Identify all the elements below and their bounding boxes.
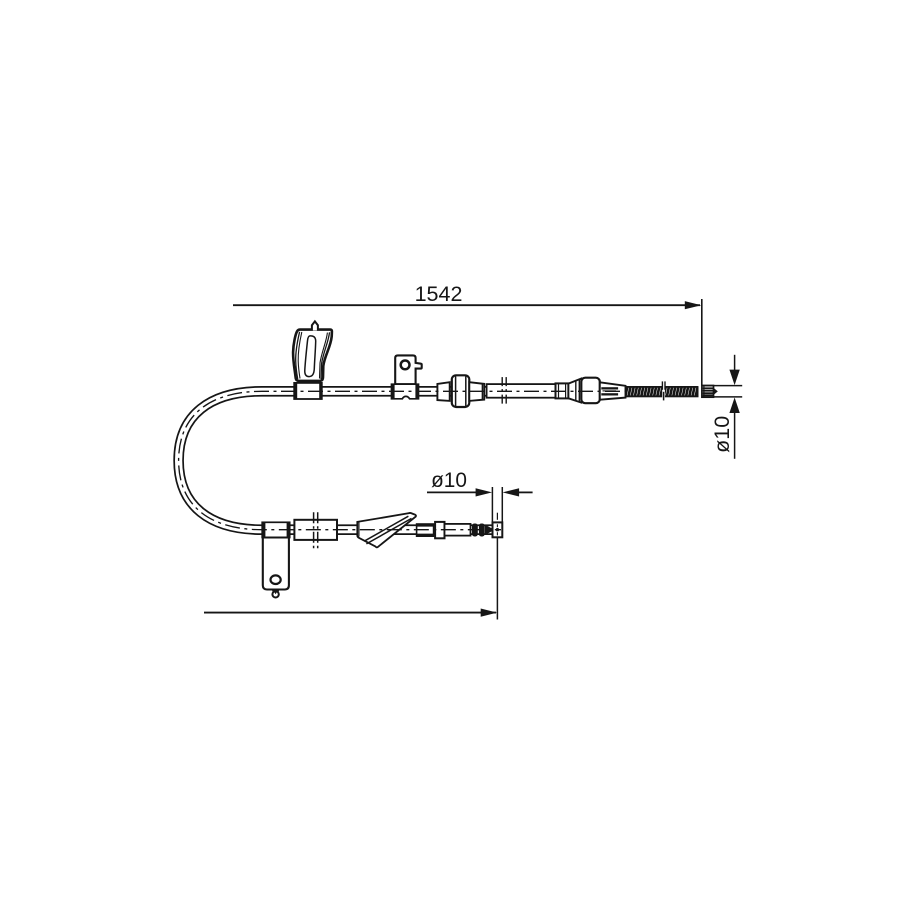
svg-text:ø10: ø10 (710, 416, 734, 453)
svg-text:ø10: ø10 (431, 469, 467, 492)
svg-text:1542: 1542 (415, 282, 463, 306)
